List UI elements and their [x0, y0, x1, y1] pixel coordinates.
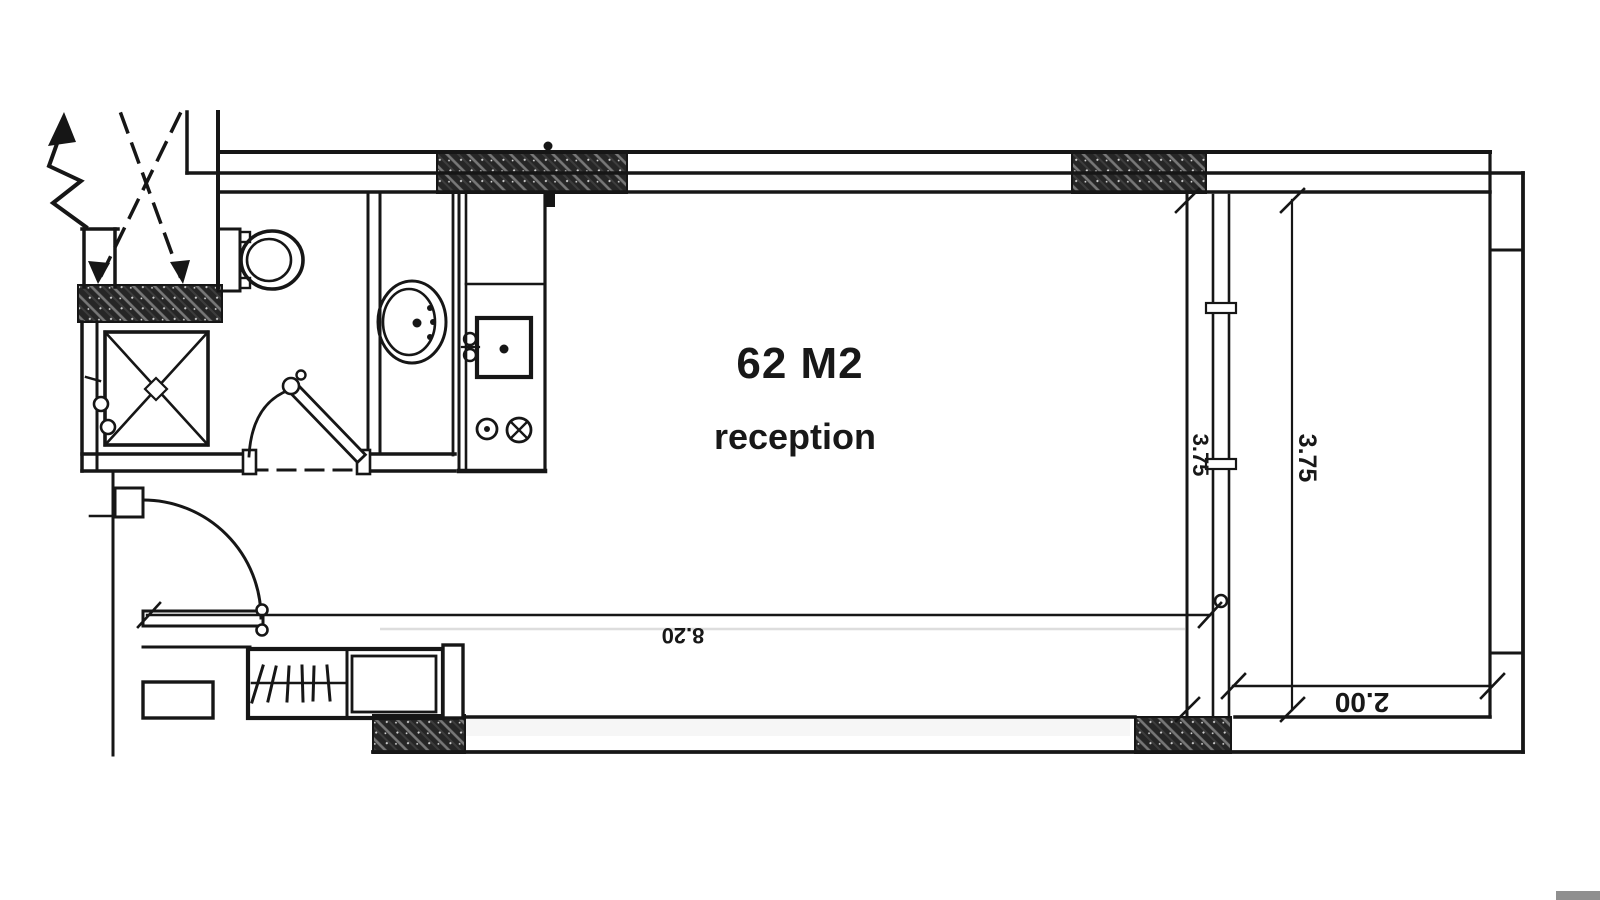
toilet-icon: [218, 229, 303, 291]
entry-area: [143, 500, 463, 718]
room-area-label: 62 M2: [736, 339, 863, 388]
dim-text-terrace-width: 2.00: [1335, 687, 1390, 718]
shoe-cabinet-icon: [143, 682, 213, 718]
wardrobe-shelf-box: [352, 656, 436, 712]
entry-door-leaf: [143, 611, 263, 626]
washbasin-icon: [378, 281, 446, 363]
bath-door-leaf: [289, 384, 366, 463]
wardrobe-icon: [248, 645, 463, 718]
basin-tap-hole-1: [427, 305, 433, 311]
basin-tap-hole-3: [427, 334, 433, 340]
entry-door-arc: [143, 500, 261, 618]
shaft-arrowhead-1: [170, 260, 190, 284]
kitchen-sink-drain: [500, 345, 509, 354]
bathroom-door: [243, 371, 370, 475]
bath-door-hinge: [283, 378, 299, 394]
ink-dot: [544, 142, 553, 151]
shower-valve-2: [101, 420, 115, 434]
burner-right-cross: [511, 422, 527, 438]
toilet-bowl-inner: [247, 239, 291, 281]
hatch-bottom-right: [1135, 717, 1231, 753]
basin-drain: [413, 319, 422, 328]
dim-text-terrace-depth: 3.75: [1293, 434, 1321, 483]
labels: 62 M2 reception 8.20 3.75 3.75 2.00: [662, 339, 1390, 718]
shower-valve-1: [94, 397, 108, 411]
room-name-label: reception: [714, 416, 876, 457]
dim-text-bottom-width: 8.20: [662, 623, 705, 648]
break-line-arrowhead: [48, 112, 76, 146]
scan-smudge: [430, 718, 1130, 736]
dim-text-room-depth: 3.75: [1188, 434, 1213, 477]
glazing-coupler-1: [1206, 303, 1236, 313]
shaft-arrowhead-2: [88, 261, 110, 284]
hatch-bottom-left: [373, 715, 465, 753]
hanger-5: [313, 667, 314, 700]
basin-tap-hole-2: [430, 319, 436, 325]
kitchenette: [462, 318, 531, 442]
glazing-end-cap: [1215, 595, 1227, 607]
toilet-tank: [218, 229, 240, 291]
bath-door-arc: [249, 390, 289, 456]
ink-mark: [546, 193, 555, 207]
hanger-3: [287, 667, 289, 701]
entry-door-hinge-2: [257, 625, 268, 636]
shaft-dashed-line-1: [121, 114, 180, 276]
shower-tray-icon: [86, 332, 208, 445]
burner-left-center: [484, 426, 490, 432]
bath-door-pivot: [297, 371, 306, 380]
basin-inner: [383, 289, 435, 355]
bathroom-fixtures: [86, 229, 446, 474]
floor-plan-sheet: 62 M2 reception 8.20 3.75 3.75 2.00: [0, 0, 1600, 900]
floor-plan-canvas: 62 M2 reception 8.20 3.75 3.75 2.00: [0, 0, 1600, 900]
hanger-6: [327, 666, 330, 700]
hanger-4: [302, 666, 303, 701]
shaft-dashed-line-2: [101, 114, 180, 276]
shaft-symbol: [48, 112, 190, 284]
entry-jamb-block: [115, 488, 143, 517]
hatch-bath-wall: [78, 285, 222, 322]
wardrobe-side-panel: [443, 645, 463, 718]
scrollbar-corner[interactable]: [1556, 891, 1600, 900]
